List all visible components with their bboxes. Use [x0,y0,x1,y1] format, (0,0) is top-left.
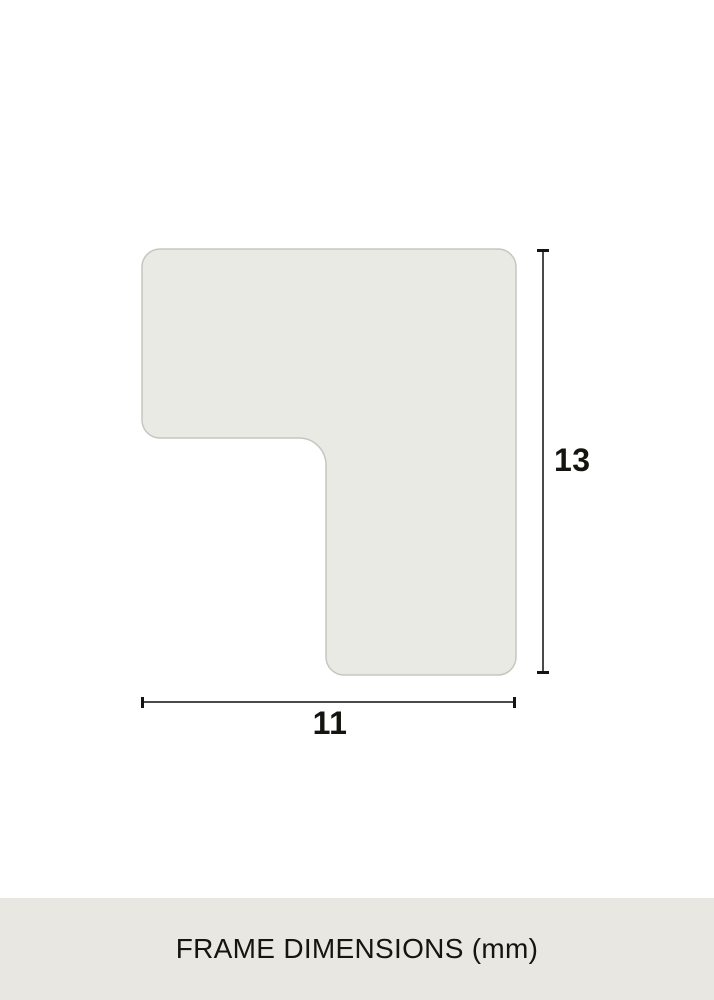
frame-profile-shape-icon [0,0,714,1000]
width-dimension-tick-right [513,697,516,708]
height-dimension-tick-top [537,249,549,252]
height-dimension-line [542,250,544,673]
footer-title: FRAME DIMENSIONS (mm) [176,933,539,965]
height-value-label: 13 [554,444,591,476]
width-dimension-tick-left [141,697,144,708]
width-value-label: 11 [290,707,370,739]
footer-bar: FRAME DIMENSIONS (mm) [0,898,714,1000]
width-dimension-line [142,701,515,703]
height-dimension-tick-bottom [537,671,549,674]
diagram-canvas: 13 11 [0,0,714,1000]
l-profile-path [142,249,516,675]
